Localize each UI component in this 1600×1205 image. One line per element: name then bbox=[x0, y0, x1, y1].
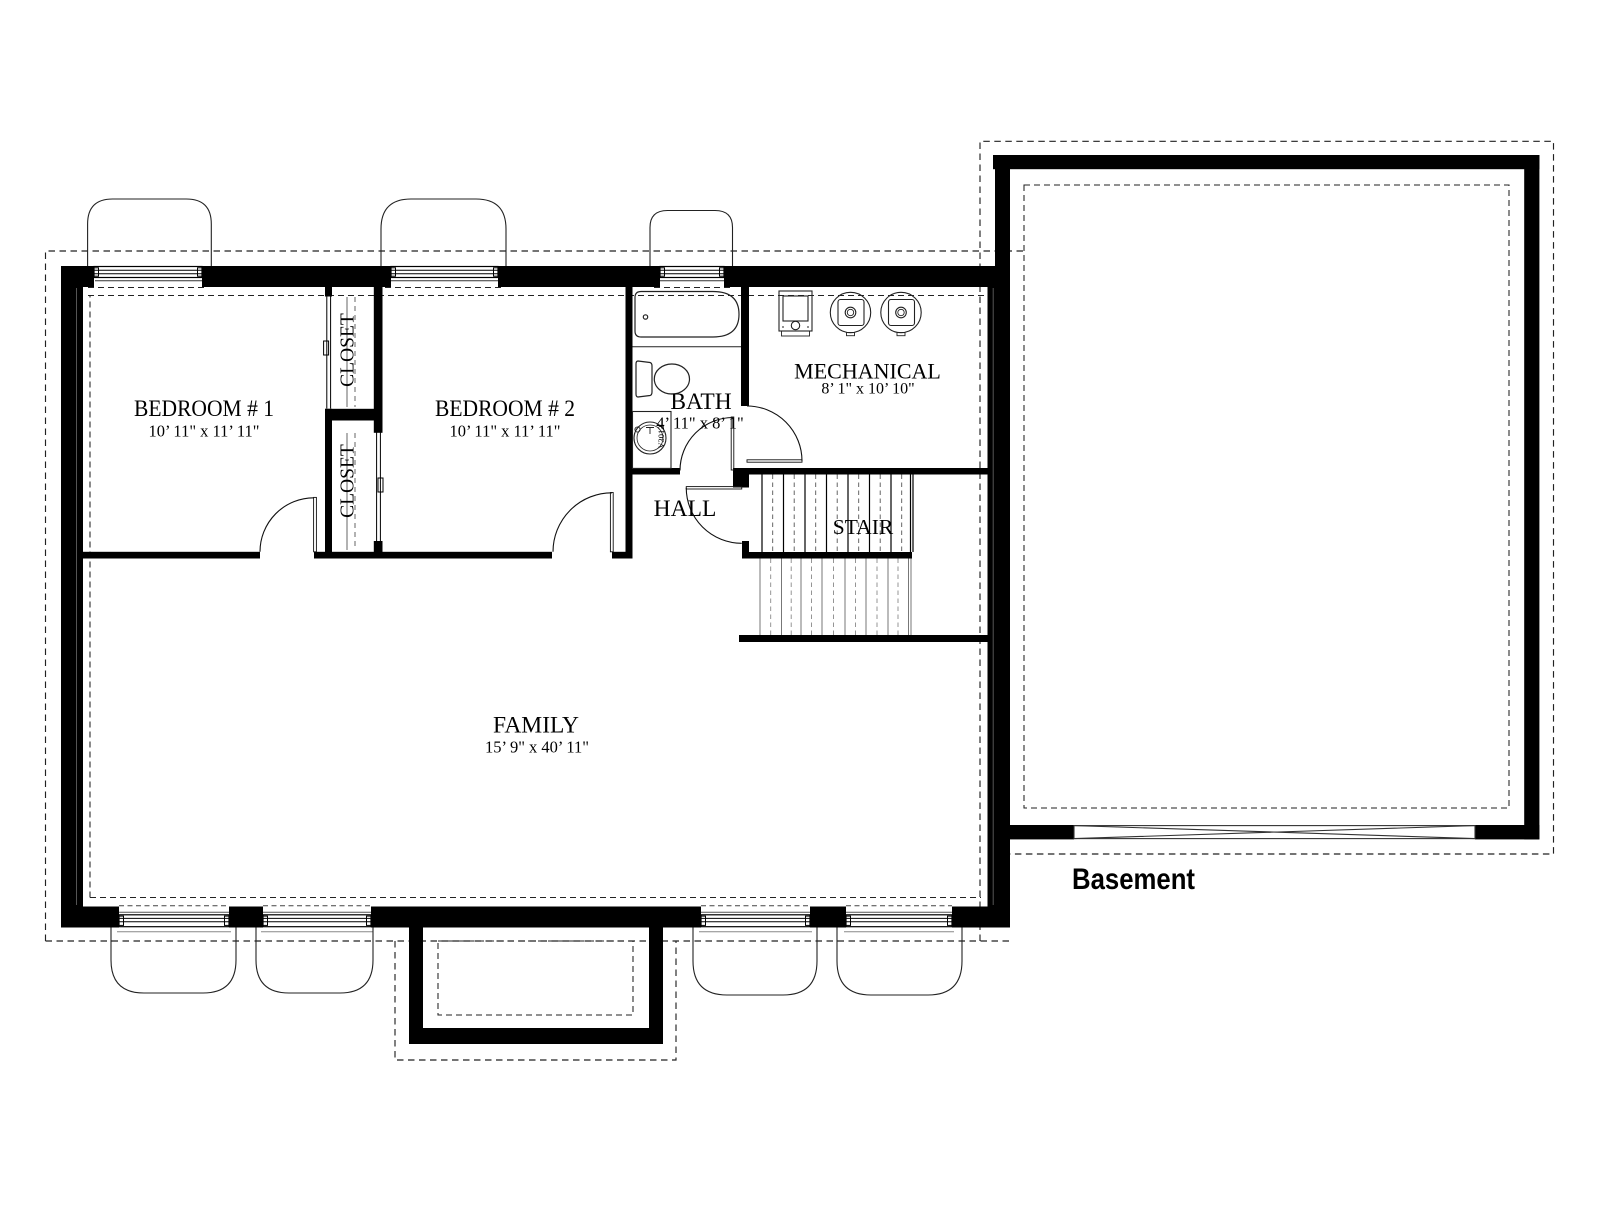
svg-text:CLOSET: CLOSET bbox=[338, 444, 359, 518]
svg-text:FAMILY: FAMILY bbox=[493, 713, 579, 739]
svg-text:Basement: Basement bbox=[1072, 863, 1195, 896]
svg-text:BEDROOM # 1: BEDROOM # 1 bbox=[134, 396, 274, 422]
svg-text:4’ 11" x 8’ 1": 4’ 11" x 8’ 1" bbox=[656, 414, 743, 433]
svg-text:STAIR: STAIR bbox=[833, 515, 894, 539]
svg-text:10’ 11" x 11’ 11": 10’ 11" x 11’ 11" bbox=[149, 422, 260, 441]
svg-text:CLOSET: CLOSET bbox=[338, 313, 359, 387]
svg-text:8’ 1" x 10’ 10": 8’ 1" x 10’ 10" bbox=[821, 381, 914, 398]
svg-text:BEDROOM # 2: BEDROOM # 2 bbox=[435, 396, 575, 422]
svg-text:BATH: BATH bbox=[670, 389, 731, 415]
svg-text:HALL: HALL bbox=[654, 496, 717, 522]
svg-text:10’ 11" x 11’ 11": 10’ 11" x 11’ 11" bbox=[450, 422, 561, 441]
svg-text:15’ 9" x 40’ 11": 15’ 9" x 40’ 11" bbox=[485, 738, 589, 757]
